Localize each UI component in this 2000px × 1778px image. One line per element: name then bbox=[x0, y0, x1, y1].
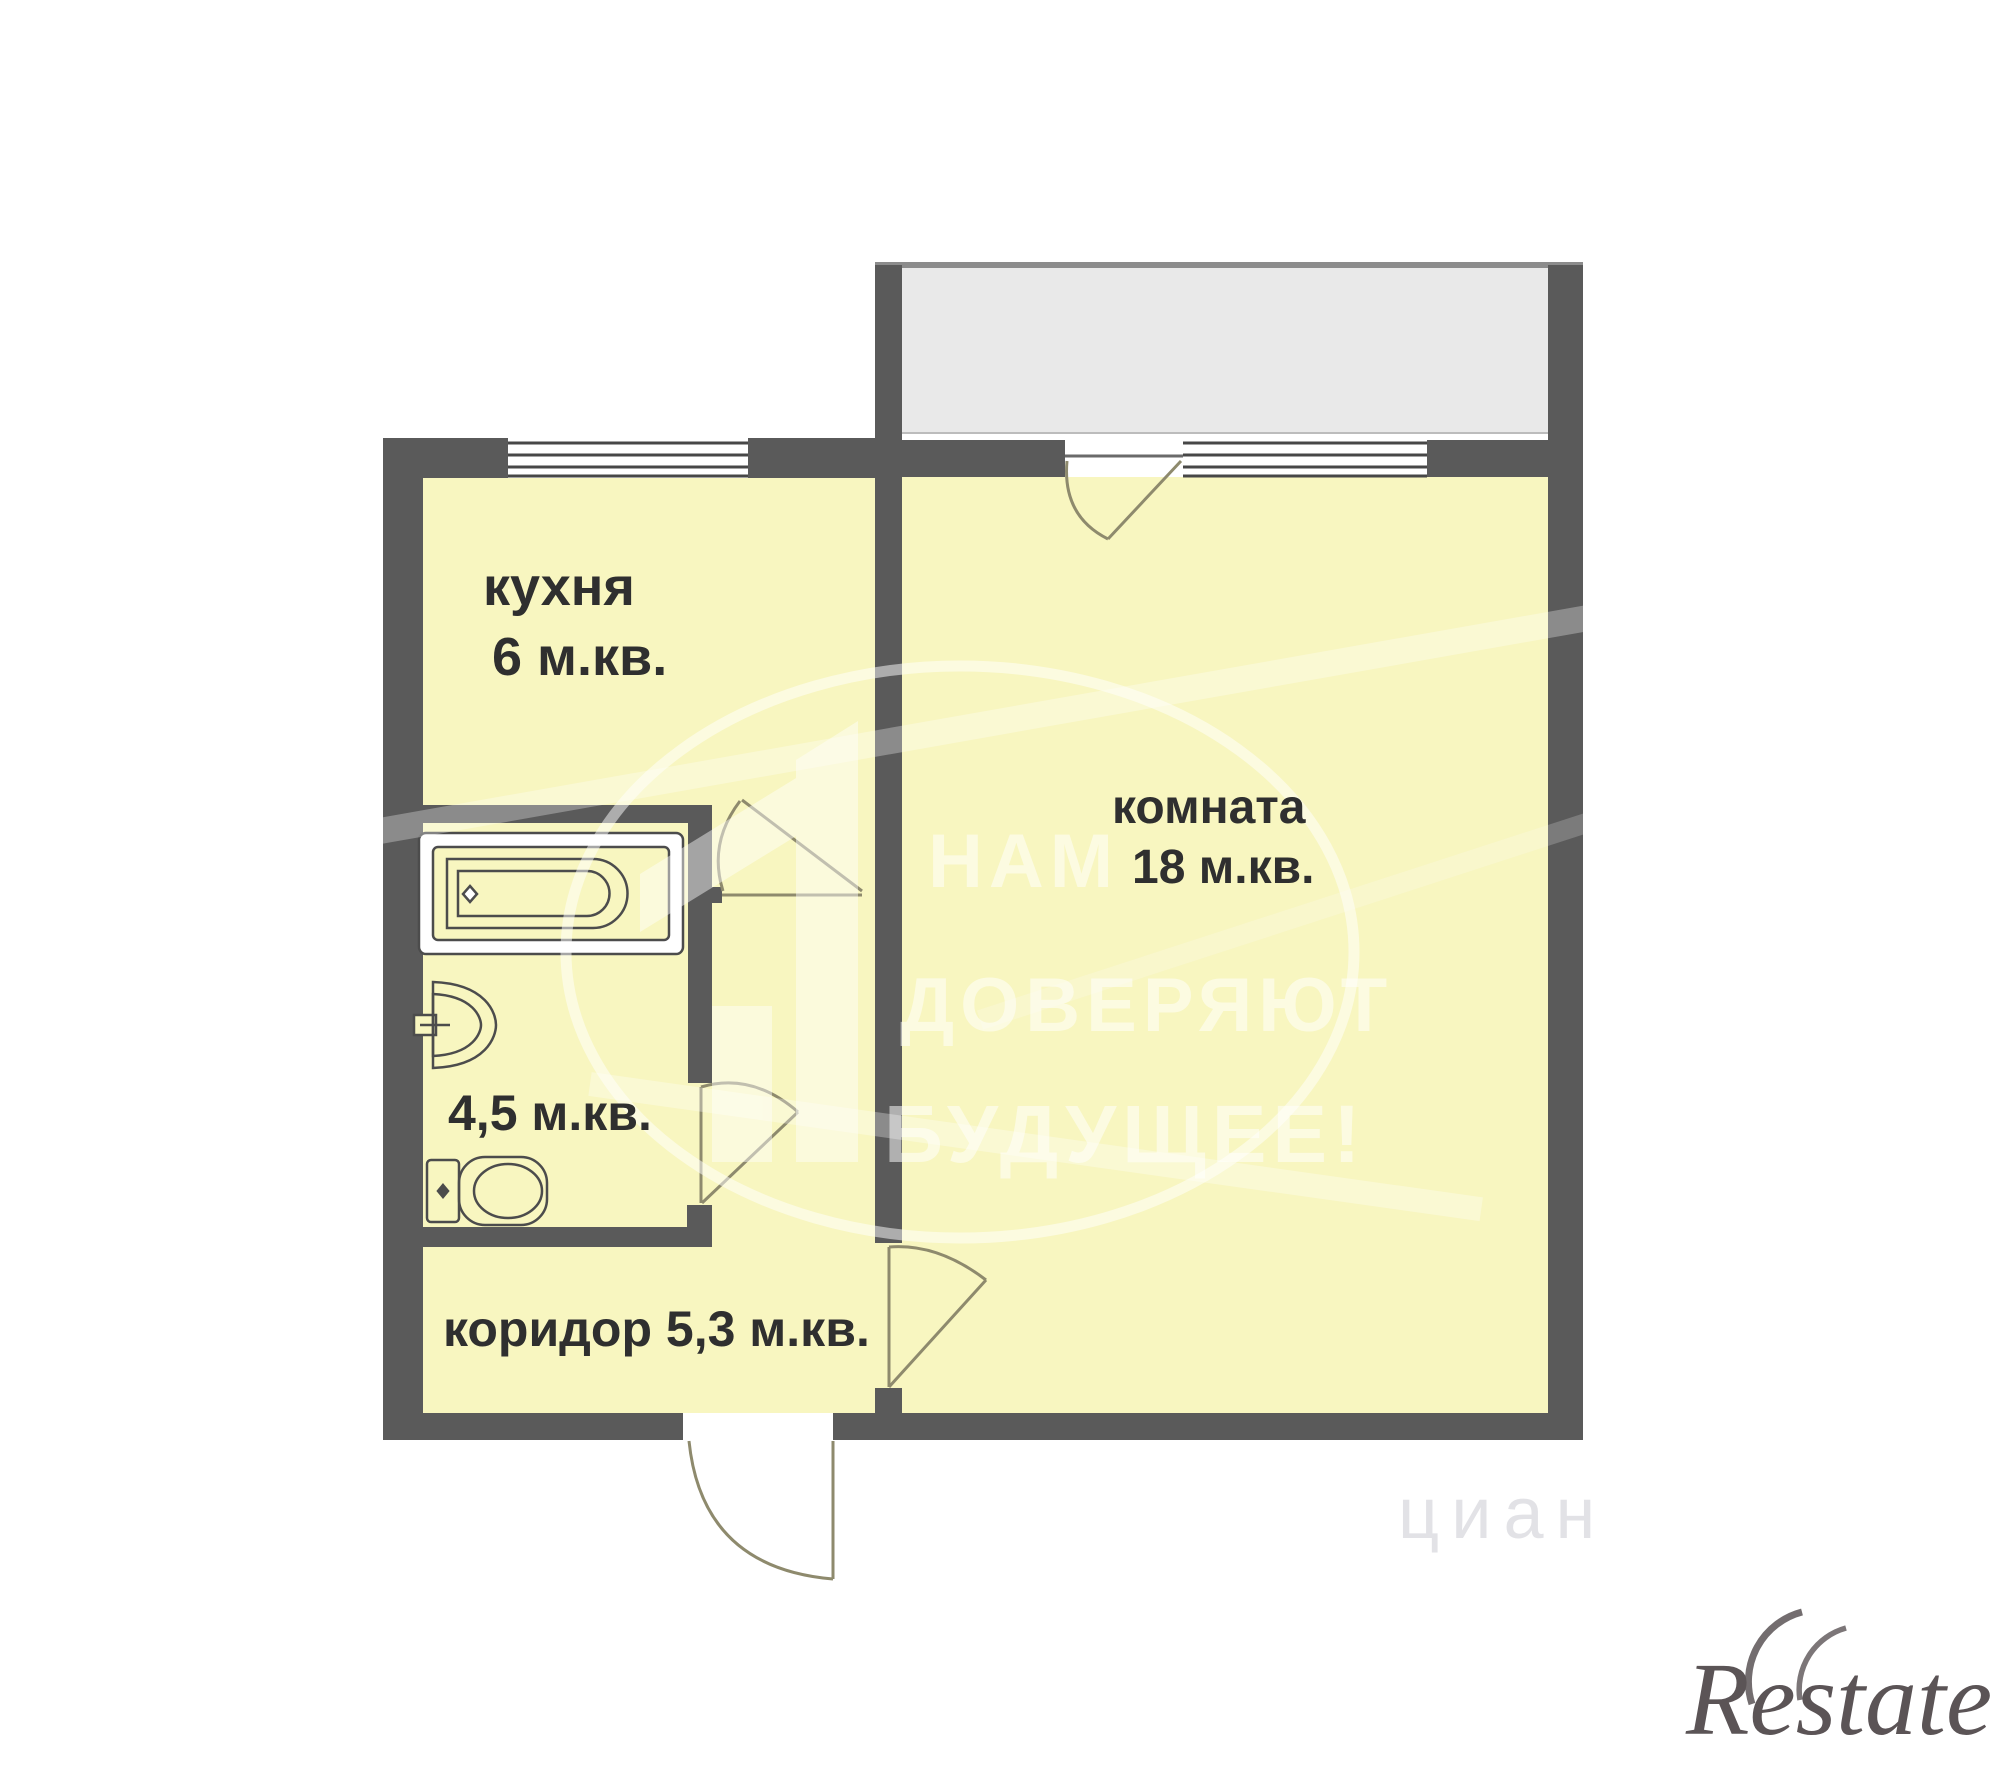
sink-icon bbox=[414, 982, 496, 1068]
brand-logo: Restate bbox=[1686, 1648, 1992, 1752]
floor-plan: НАМ ДОВЕРЯЮТ БУДУЩЕЕ! циан кухня 6 м.кв.… bbox=[0, 0, 2000, 1778]
watermark-line-2: ДОВЕРЯЮТ bbox=[900, 968, 1393, 1044]
kitchen-area-label: 6 м.кв. bbox=[492, 630, 667, 684]
balcony-door-arc bbox=[1067, 461, 1181, 539]
room-name-label: комната bbox=[1112, 784, 1305, 832]
room-door-arc bbox=[889, 1247, 986, 1387]
corridor-label: коридор 5,3 м.кв. bbox=[443, 1304, 870, 1354]
kitchen-name-label: кухня bbox=[483, 560, 635, 614]
room-window-glazing-icon bbox=[1183, 443, 1427, 476]
watermark-line-1: НАМ bbox=[928, 824, 1119, 900]
bathroom-area-label: 4,5 м.кв. bbox=[448, 1088, 652, 1138]
kitchen-window-glazing-icon bbox=[508, 443, 748, 476]
room-area-label: 18 м.кв. bbox=[1132, 844, 1314, 892]
watermark-line-3: БУДУЩЕЕ! bbox=[884, 1094, 1366, 1176]
toilet-icon bbox=[427, 1157, 547, 1225]
entrance-door-arc bbox=[689, 1441, 833, 1579]
watermark-faint-text: циан bbox=[1398, 1478, 1607, 1550]
